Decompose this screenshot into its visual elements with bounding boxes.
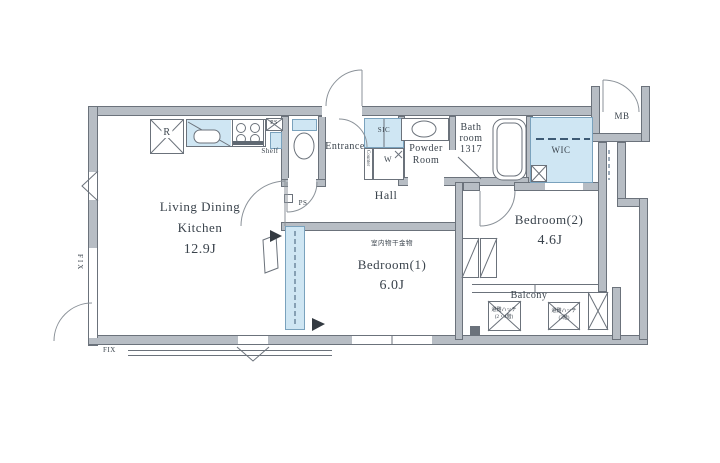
wall-bedroom2-right: [598, 142, 607, 292]
refrigerator-label: R: [161, 128, 172, 138]
washer-space: [373, 148, 404, 180]
hatch1-label-line2: (2・4階): [495, 315, 513, 320]
bedroom1-annotation: 室内物干金物: [371, 241, 413, 248]
detail-overlay: [0, 0, 720, 463]
partition-open-leaf: [263, 235, 278, 273]
bathtub: [493, 119, 526, 180]
bedroom2-size-label: 4.6J: [538, 234, 563, 248]
partition-arrow-bottom-icon: [312, 318, 325, 331]
ldk-label-line2: Kitchen: [178, 221, 223, 234]
mb-door-swing: [603, 80, 639, 112]
wic-pipe-space-box: [531, 165, 547, 182]
washer-label: W: [384, 156, 392, 164]
bath-door: [458, 157, 481, 179]
bathroom-label-line3: 1317: [460, 145, 482, 155]
window-bottom-casement: [238, 335, 268, 345]
bedroom2-door-swing: [480, 191, 515, 226]
bathroom-label-line2: room: [459, 134, 482, 144]
wall-outer-right: [639, 198, 648, 340]
powder-room-label-line1: Powder: [409, 144, 443, 154]
shelf-label: Shelf: [261, 148, 278, 155]
wall-mb-right: [641, 86, 650, 142]
balcony-corner-block: [470, 326, 480, 335]
hatch2-label-line2: (3階): [559, 316, 570, 321]
ldk-label-line1: Living Dining: [160, 200, 241, 213]
bathroom-label-line1: Bath: [461, 123, 482, 133]
entrance-label: Entrance: [325, 142, 365, 152]
corner-window-swing: [54, 303, 92, 341]
wall-balcony-right: [612, 287, 621, 340]
stove: [232, 119, 264, 147]
powder-counter: [401, 118, 449, 141]
entrance-door-swing: [326, 70, 362, 106]
hatch1-label-line1: 避難ハッチ: [491, 308, 516, 313]
opening-powder-door: [408, 176, 444, 187]
partition-arrow-top-icon: [270, 230, 282, 242]
wall-hall-bottom: [281, 222, 463, 231]
sic-label: SIC: [378, 127, 390, 134]
toilet: [294, 133, 314, 159]
kitchen-sink-counter: [187, 120, 231, 146]
interior-panel-2: [480, 238, 497, 278]
opening-bath-door: [448, 150, 457, 177]
hall-pipe-space-box: [284, 194, 293, 203]
sliding-partition: [285, 226, 305, 330]
opening-toilet-door: [288, 178, 316, 188]
powder-room-label-line2: Room: [413, 156, 439, 166]
window-bedroom1: [352, 335, 432, 345]
pipe-space-top-label: PS: [270, 120, 278, 126]
wic-label: WIC: [552, 146, 571, 155]
wall-outer-stub: [617, 142, 626, 204]
wall-bedroom2-top-left: [463, 182, 480, 191]
window-fix-band-bottom: [128, 350, 332, 356]
interior-panel-1: [462, 238, 479, 278]
opening-entrance-door: [322, 105, 362, 117]
floor-plan: Living Dining Kitchen 12.9J 室内物干金物 Bedro…: [0, 0, 720, 463]
ldk-size-label: 12.9J: [184, 243, 216, 257]
balcony-brace-box: [588, 292, 608, 330]
bedroom1-size-label: 6.0J: [380, 279, 405, 293]
window-left-fix: [88, 248, 98, 338]
bedroom2-label: Bedroom(2): [515, 213, 584, 226]
toilet-tank: [292, 119, 317, 131]
window-left-casement: [88, 172, 98, 200]
counter-label: Counter: [365, 150, 370, 166]
fix-bottom-label: FIX: [103, 347, 116, 354]
fix-left-label: FIX: [76, 254, 83, 271]
bedroom1-label: Bedroom(1): [358, 258, 427, 271]
opening-wic: [545, 182, 583, 191]
hall-label: Hall: [375, 189, 398, 201]
hatch2-label-line1: 避難ハッチ: [551, 309, 576, 314]
mb-label: MB: [614, 112, 629, 121]
pipe-space-hall-label: PS: [299, 200, 308, 207]
balcony-label: Balcony: [511, 291, 548, 301]
ldk-door-swing: [241, 180, 285, 226]
